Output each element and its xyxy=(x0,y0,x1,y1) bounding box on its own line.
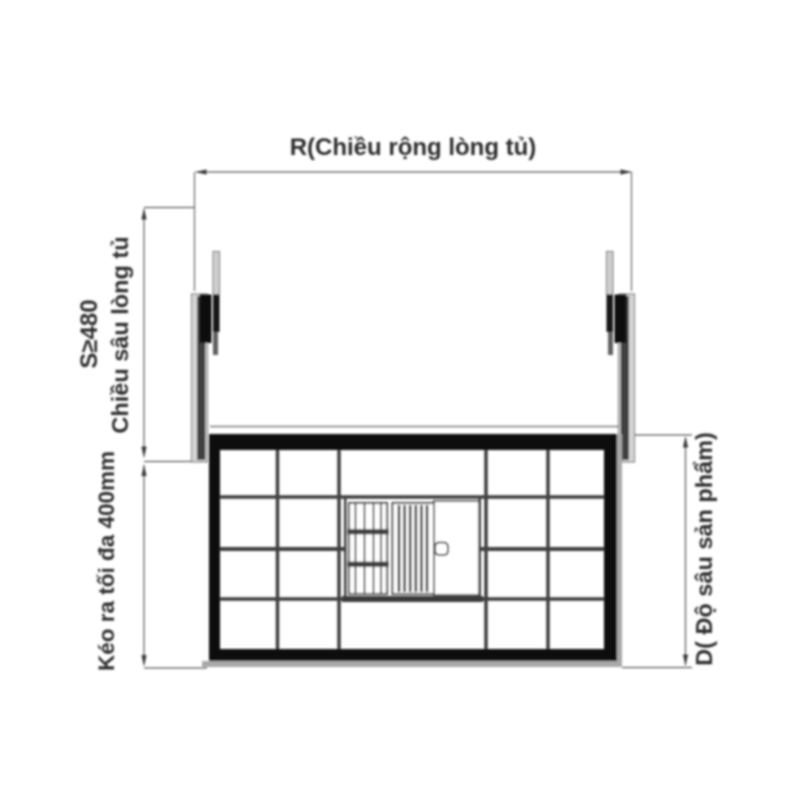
svg-text:S≥480: S≥480 xyxy=(76,299,103,368)
svg-text:D( Độ sâu sản phẩm): D( Độ sâu sản phẩm) xyxy=(691,432,717,666)
svg-text:Kéo ra tối đa 400mm: Kéo ra tối đa 400mm xyxy=(94,451,119,671)
svg-text:R(Chiều rộng lòng tủ): R(Chiều rộng lòng tủ) xyxy=(290,134,537,161)
svg-text:Chiều sâu lòng tủ: Chiều sâu lòng tủ xyxy=(107,236,133,433)
